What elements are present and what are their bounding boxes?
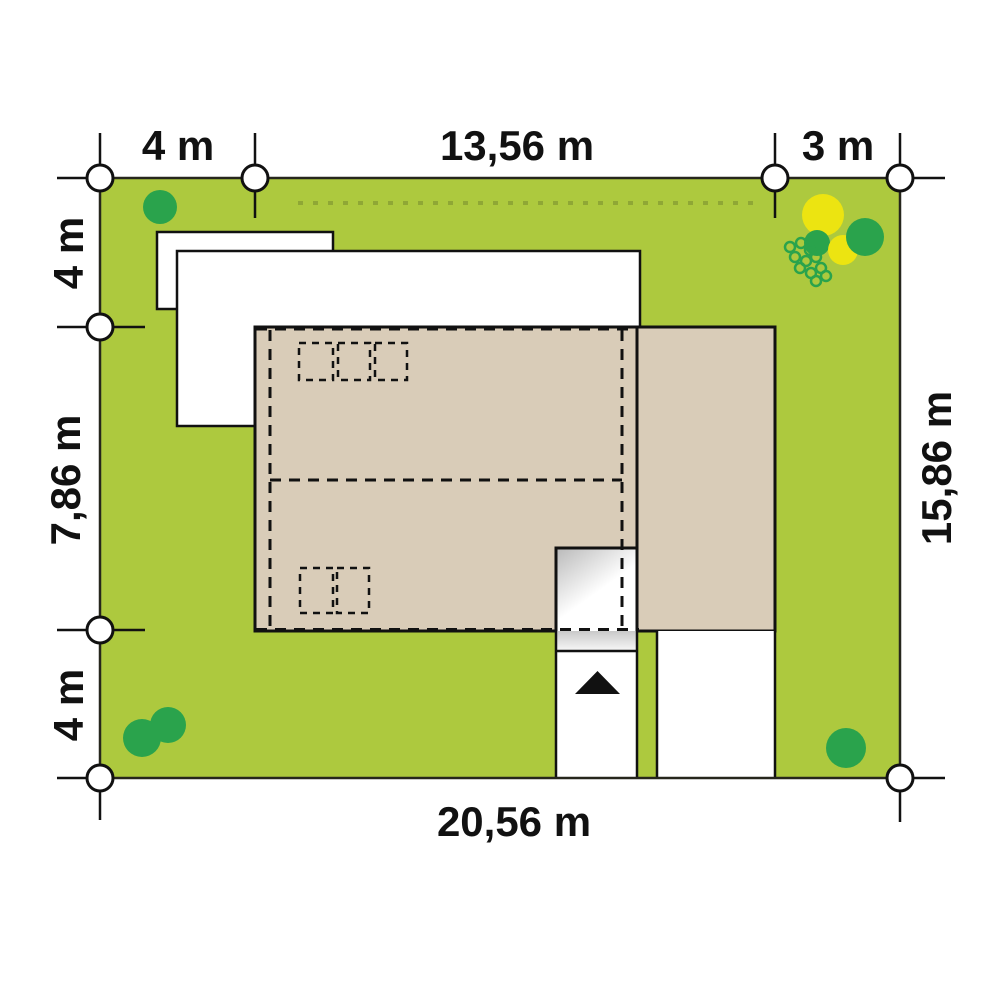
survey-marker-icon <box>87 314 113 340</box>
dim-top-setback-right: 3 m <box>802 125 874 167</box>
dim-top-setback-left: 4 m <box>142 125 214 167</box>
entrance-recess-floor <box>556 548 637 631</box>
dim-top-house-width: 13,56 m <box>440 125 594 167</box>
tree-icon <box>826 728 866 768</box>
site-plan-canvas: 4 m 13,56 m 3 m 4 m 7,86 m 4 m 15,86 m 2… <box>0 0 1000 1000</box>
survey-marker-icon <box>242 165 268 191</box>
survey-marker-icon <box>87 165 113 191</box>
survey-marker-icon <box>887 165 913 191</box>
survey-marker-icon <box>762 165 788 191</box>
tree-icon <box>143 190 177 224</box>
entrance-recess <box>556 548 637 631</box>
dim-bottom-plot-width: 20,56 m <box>437 801 591 843</box>
dim-left-setback-top: 4 m <box>48 217 90 289</box>
dim-left-house-depth: 7,86 m <box>45 415 87 546</box>
driveway <box>556 631 637 778</box>
survey-marker-icon <box>87 617 113 643</box>
dim-left-setback-bottom: 4 m <box>48 669 90 741</box>
survey-marker-icon <box>887 765 913 791</box>
yellow-tree-icon <box>802 194 844 236</box>
shrub-icon <box>150 707 186 743</box>
dim-right-plot-depth: 15,86 m <box>916 391 958 545</box>
patio-surface <box>658 631 774 778</box>
patio-path <box>657 631 775 778</box>
survey-marker-icon <box>87 765 113 791</box>
tree-icon <box>846 218 884 256</box>
house-roof-wing <box>637 327 775 631</box>
